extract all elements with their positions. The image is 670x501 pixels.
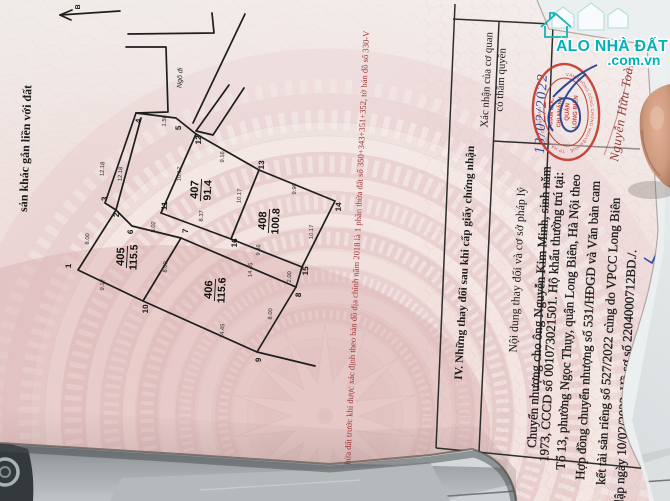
svg-text:14: 14: [334, 202, 343, 212]
svg-text:Ngõ đi: Ngõ đi: [176, 67, 184, 88]
svg-text:QUẬN: QUẬN: [564, 103, 572, 121]
svg-text:115.5: 115.5: [127, 244, 140, 270]
svg-text:14.45: 14.45: [220, 324, 227, 339]
svg-text:91.4: 91.4: [201, 180, 214, 201]
svg-text:2.00: 2.00: [287, 271, 294, 283]
svg-text:10.17: 10.17: [177, 167, 184, 182]
svg-text:12: 12: [194, 135, 203, 145]
svg-text:10.17: 10.17: [237, 189, 244, 204]
svg-text:9.16: 9.16: [220, 151, 227, 163]
svg-text:10: 10: [141, 304, 150, 314]
svg-text:8.00: 8.00: [268, 308, 275, 320]
svg-text:12.18: 12.18: [100, 162, 107, 177]
svg-text:407: 407: [189, 180, 202, 199]
svg-text:9.36: 9.36: [256, 244, 263, 256]
svg-text:B: B: [75, 4, 82, 9]
svg-text:.com.vn: .com.vn: [608, 52, 661, 68]
svg-text:15: 15: [301, 266, 310, 276]
svg-text:16: 16: [230, 238, 239, 248]
svg-text:115.6: 115.6: [215, 277, 228, 303]
svg-text:10.17: 10.17: [309, 225, 316, 240]
svg-text:11: 11: [160, 201, 169, 210]
svg-text:405: 405: [115, 247, 128, 266]
svg-text:408: 408: [257, 211, 270, 230]
svg-text:9.90: 9.90: [292, 183, 299, 195]
svg-text:8.00: 8.00: [163, 261, 170, 273]
svg-text:100.8: 100.8: [269, 208, 282, 235]
svg-text:8.00: 8.00: [85, 233, 92, 245]
svg-text:406: 406: [203, 280, 216, 299]
svg-text:14.45: 14.45: [248, 263, 255, 278]
svg-text:1.50: 1.50: [162, 115, 169, 127]
svg-text:9.12: 9.12: [100, 279, 107, 291]
svg-text:12.18: 12.18: [118, 167, 125, 182]
svg-text:8.02: 8.02: [151, 221, 158, 233]
svg-text:8.37: 8.37: [199, 210, 206, 222]
svg-text:13: 13: [257, 160, 266, 170]
